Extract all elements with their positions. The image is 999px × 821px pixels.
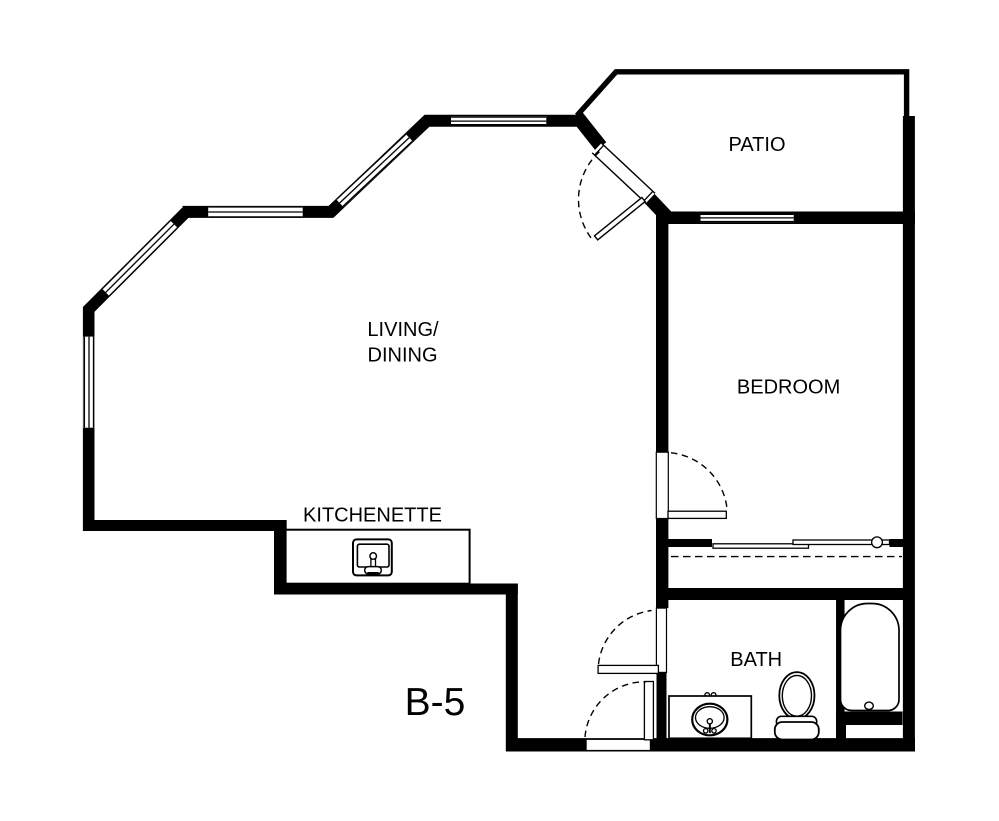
svg-text:PATIO: PATIO xyxy=(728,134,785,156)
svg-text:DINING: DINING xyxy=(368,344,438,366)
svg-text:LIVING/: LIVING/ xyxy=(367,319,439,341)
svg-text:B-5: B-5 xyxy=(405,681,466,724)
svg-text:BATH: BATH xyxy=(730,649,782,671)
svg-text:BEDROOM: BEDROOM xyxy=(737,377,840,399)
svg-text:KITCHENETTE: KITCHENETTE xyxy=(303,504,442,526)
